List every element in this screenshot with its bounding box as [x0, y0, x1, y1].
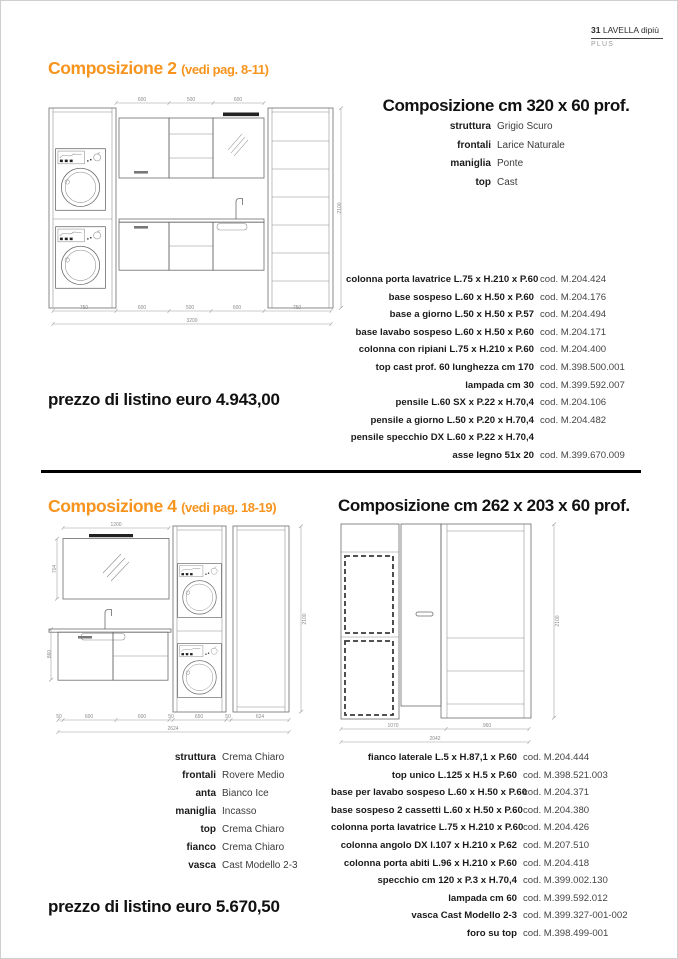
hidden-washer-outline — [345, 556, 393, 633]
item-name: colonna porta abiti L.96 x H.210 x P.60 — [331, 858, 517, 869]
comp4-front-drawing: 1200 704 860 2100 50 600 600 50 650 50 6… — [41, 521, 341, 751]
comp2-title: Composizione 2 (vedi pag. 8-11) — [48, 58, 269, 79]
item-name: base a giorno L.50 x H.50 x P.57 — [346, 309, 534, 320]
washing-machine-icon — [178, 644, 222, 698]
spec-label: struttura — [141, 752, 216, 763]
spec-value: Incasso — [222, 806, 256, 817]
item-row: pensile a giorno L.50 x P.20 x H.70,4cod… — [346, 415, 646, 433]
item-name: specchio cm 120 x P.3 x H.70,4 — [331, 875, 517, 886]
section-divider — [41, 470, 641, 473]
spec-row: strutturaGrigio Scuro — [384, 121, 634, 140]
dim-total-label: 3200 — [186, 318, 197, 324]
item-code: cod. M.204.106 — [540, 397, 606, 408]
item-row: specchio cm 120 x P.3 x H.70,4cod. M.399… — [331, 875, 643, 893]
comp4-title-text: Composizione 4 — [48, 496, 177, 516]
comp2-washer-column — [49, 108, 116, 308]
spec-label: frontali — [384, 140, 491, 151]
comp4-washer-column — [173, 526, 226, 712]
countertop — [49, 629, 171, 632]
item-row: top unico L.125 x H.5 x P.60cod. M.398.5… — [331, 770, 643, 788]
lamp-icon — [223, 113, 259, 117]
dim-label: 50 — [168, 714, 174, 720]
comp2-items: colonna porta lavatrice L.75 x H.210 x P… — [346, 274, 646, 468]
item-row: base sospeso L.60 x H.50 x P.60cod. M.20… — [346, 292, 646, 310]
item-name: colonna porta lavatrice L.75 x H.210 x P… — [346, 274, 534, 285]
item-name: pensile L.60 SX x P.22 x H.70,4 — [346, 397, 534, 408]
comp2-wall-units — [119, 113, 264, 179]
dim-label: 750 — [80, 305, 89, 311]
dim-label: 600 — [138, 714, 147, 720]
item-code: cod. M.399.670.009 — [540, 450, 625, 461]
cabinet-handle — [78, 636, 92, 639]
item-name: lampada cm 30 — [346, 380, 534, 391]
spec-value: Rovere Medio — [222, 770, 284, 781]
dim-label: 624 — [256, 714, 265, 720]
item-name: foro su top — [331, 928, 517, 939]
spec-row: manigliaPonte — [384, 158, 634, 177]
dim-label: 650 — [195, 714, 204, 720]
item-name: top unico L.125 x H.5 x P.60 — [331, 770, 517, 781]
comp2-subtitle: (vedi pag. 8-11) — [181, 62, 269, 77]
dim-height-label: 2100 — [302, 613, 308, 624]
dim-label: 704 — [52, 565, 58, 574]
basin — [217, 224, 247, 231]
item-code: cod. M.204.371 — [523, 787, 589, 798]
comp4-tall-door — [401, 524, 441, 706]
item-name: colonna angolo DX l.107 x H.210 x P.62 — [331, 840, 517, 851]
item-name: base sospeso L.60 x H.50 x P.60 — [346, 292, 534, 303]
comp2-base-units — [119, 199, 264, 271]
mirror-cabinet — [213, 118, 264, 178]
item-code: cod. M.204.494 — [540, 309, 606, 320]
item-row: colonna angolo DX l.107 x H.210 x P.62co… — [331, 840, 643, 858]
spec-row: topCast — [384, 177, 634, 196]
item-code: cod. M.204.380 — [523, 805, 589, 816]
item-name: base sospeso 2 cassetti L.60 x H.50 x P.… — [331, 805, 517, 816]
dim-label: 600 — [85, 714, 94, 720]
spec-row: topCrema Chiaro — [141, 824, 331, 842]
mirror — [63, 539, 169, 600]
spec-row: fiancoCrema Chiaro — [141, 842, 331, 860]
spec-value: Crema Chiaro — [222, 752, 284, 763]
item-name: asse legno 51x 20 — [346, 450, 534, 461]
item-name: fianco laterale L.5 x H.87,1 x P.60 — [331, 752, 517, 763]
item-row: foro su topcod. M.398.499-001 — [331, 928, 643, 946]
item-code: cod. M.204.482 — [540, 415, 606, 426]
item-name: base per lavabo sospeso L.60 x H.50 x P.… — [331, 787, 517, 798]
item-name: base lavabo sospeso L.60 x H.50 x P.60 — [346, 327, 534, 338]
item-row: colonna porta lavatrice L.75 x H.210 x P… — [331, 822, 643, 840]
mirror-glass-hatch — [228, 134, 248, 156]
comp4-title: Composizione 4 (vedi pag. 18-19) — [48, 496, 276, 517]
item-row: lampada cm 60cod. M.399.592.012 — [331, 893, 643, 911]
spec-label: top — [141, 824, 216, 835]
item-code: cod. M.207.510 — [523, 840, 589, 851]
item-code: cod. M.398.521.003 — [523, 770, 608, 781]
comp4-hidden-washer-column — [341, 524, 399, 719]
spec-row: frontaliLarice Naturale — [384, 140, 634, 159]
comp4-corner-column — [233, 526, 289, 712]
dim-label: 1070 — [387, 723, 398, 729]
spec-value: Bianco Ice — [222, 788, 269, 799]
dim-label: 500 — [187, 97, 196, 103]
item-row: base sospeso 2 cassetti L.60 x H.50 x P.… — [331, 805, 643, 823]
item-code: cod. M.204.400 — [540, 344, 606, 355]
spec-row: frontaliRovere Medio — [141, 770, 331, 788]
item-row: fianco laterale L.5 x H.87,1 x P.60cod. … — [331, 752, 643, 770]
dim-label: 50 — [225, 714, 231, 720]
series-label: PLUS — [591, 41, 663, 48]
item-row: colonna con ripiani L.75 x H.210 x P.60c… — [346, 344, 646, 362]
faucet-icon — [236, 199, 243, 220]
washing-machine-icon — [56, 227, 106, 289]
item-code: cod. M.399.592.007 — [540, 380, 625, 391]
dim-label: 50 — [56, 714, 62, 720]
item-code: cod. M.204.444 — [523, 752, 589, 763]
cabinet-handle — [134, 226, 148, 229]
dim-label: 860 — [47, 650, 53, 659]
comp2-specs: strutturaGrigio Scuro frontaliLarice Nat… — [384, 121, 634, 195]
spec-value: Grigio Scuro — [497, 121, 553, 132]
item-name: pensile specchio DX L.60 x P.22 x H.70,4 — [346, 432, 534, 443]
mirror-glass-hatch — [103, 554, 129, 581]
dim-label: 600 — [138, 97, 147, 103]
catalog-page: 31 LAVELLA dipiù PLUS Composizione 2 (ve… — [0, 0, 678, 959]
spec-row: antaBianco Ice — [141, 788, 331, 806]
item-code: cod. M.399.592.012 — [523, 893, 608, 904]
dim-label: 500 — [186, 305, 195, 311]
spec-value: Cast — [497, 177, 518, 188]
spec-value: Ponte — [497, 158, 523, 169]
comp4-specs: strutturaCrema Chiaro frontaliRovere Med… — [141, 752, 331, 878]
dim-height-label: 2100 — [555, 615, 561, 626]
comp4-side-drawing: 2100 1070 960 2042 — [339, 516, 644, 761]
comp2-price: prezzo di listino euro 4.943,00 — [48, 390, 280, 410]
comp4-size-title: Composizione cm 262 x 203 x 60 prof. — [338, 496, 630, 516]
dim-total-label: 2042 — [429, 736, 440, 742]
dim-label: 600 — [234, 97, 243, 103]
item-code: cod. M.399.002.130 — [523, 875, 608, 886]
brand-name: LAVELLA dipiù — [603, 25, 659, 35]
item-name: colonna con ripiani L.75 x H.210 x P.60 — [346, 344, 534, 355]
spec-value: Crema Chiaro — [222, 824, 284, 835]
page-header: 31 LAVELLA dipiù PLUS — [591, 25, 663, 48]
item-row: colonna porta lavatrice L.75 x H.210 x P… — [346, 274, 646, 292]
item-row: pensile specchio DX L.60 x P.22 x H.70,4 — [346, 432, 646, 450]
dim-label: 750 — [293, 305, 302, 311]
hidden-washer-outline — [345, 641, 393, 715]
comp2-shelf-column — [268, 108, 333, 308]
dim-total-label: 2624 — [167, 726, 178, 732]
spec-row: strutturaCrema Chiaro — [141, 752, 331, 770]
spec-label: fianco — [141, 842, 216, 853]
item-row: pensile L.60 SX x P.22 x H.70,4cod. M.20… — [346, 397, 646, 415]
spec-label: frontali — [141, 770, 216, 781]
comp2-dimensions: 600 500 600 750 600 500 600 750 3200 210… — [52, 97, 344, 326]
lamp-icon — [89, 534, 133, 537]
item-code: cod. M.204.424 — [540, 274, 606, 285]
cabinet-handle — [134, 171, 148, 174]
item-row: asse legno 51x 20cod. M.399.670.009 — [346, 450, 646, 468]
page-brand: 31 LAVELLA dipiù — [591, 25, 663, 39]
item-name: pensile a giorno L.50 x P.20 x H.70,4 — [346, 415, 534, 426]
spec-label: maniglia — [384, 158, 491, 169]
comp4-price: prezzo di listino euro 5.670,50 — [48, 897, 280, 917]
comp4-wardrobe-column — [441, 524, 531, 718]
comp4-mirror-vanity — [49, 534, 171, 680]
washing-machine-icon — [56, 149, 106, 211]
item-code: cod. M.398.499-001 — [523, 928, 608, 939]
spec-value: Crema Chiaro — [222, 842, 284, 853]
item-row: colonna porta abiti L.96 x H.210 x P.60c… — [331, 858, 643, 876]
item-row: lampada cm 30cod. M.399.592.007 — [346, 380, 646, 398]
item-name: colonna porta lavatrice L.75 x H.210 x P… — [331, 822, 517, 833]
spec-row: manigliaIncasso — [141, 806, 331, 824]
item-code: cod. M.398.500.001 — [540, 362, 625, 373]
comp4-subtitle: (vedi pag. 18-19) — [181, 500, 276, 515]
spec-label: struttura — [384, 121, 491, 132]
countertop — [119, 219, 264, 222]
item-row: base lavabo sospeso L.60 x H.50 x P.60co… — [346, 327, 646, 345]
washing-machine-icon — [178, 564, 222, 618]
comp4-items: fianco laterale L.5 x H.87,1 x P.60cod. … — [331, 752, 643, 946]
faucet-icon — [105, 610, 112, 630]
page-number: 31 — [591, 25, 600, 35]
spec-value: Larice Naturale — [497, 140, 565, 151]
spec-label: top — [384, 177, 491, 188]
comp2-size-title: Composizione cm 320 x 60 prof. — [376, 96, 636, 116]
dim-height-label: 2100 — [337, 202, 343, 213]
dim-label: 600 — [138, 305, 147, 311]
spec-label: maniglia — [141, 806, 216, 817]
dim-label: 1200 — [110, 522, 121, 528]
dim-label: 600 — [233, 305, 242, 311]
door-handle — [416, 612, 433, 616]
item-row: base a giorno L.50 x H.50 x P.57cod. M.2… — [346, 309, 646, 327]
item-name: vasca Cast Modello 2-3 — [331, 910, 517, 921]
item-code: cod. M.399.327-001-002 — [523, 910, 628, 921]
spec-row: vascaCast Modello 2-3 — [141, 860, 331, 878]
item-row: vasca Cast Modello 2-3cod. M.399.327-001… — [331, 910, 643, 928]
item-row: top cast prof. 60 lunghezza cm 170cod. M… — [346, 362, 646, 380]
item-code: cod. M.204.418 — [523, 858, 589, 869]
dim-label: 960 — [483, 723, 492, 729]
item-code: cod. M.204.426 — [523, 822, 589, 833]
spec-value: Cast Modello 2-3 — [222, 860, 298, 871]
item-code: cod. M.204.176 — [540, 292, 606, 303]
spec-label: vasca — [141, 860, 216, 871]
comp2-drawing: 600 500 600 750 600 500 600 750 3200 210… — [45, 89, 357, 335]
item-name: top cast prof. 60 lunghezza cm 170 — [346, 362, 534, 373]
spec-label: anta — [141, 788, 216, 799]
item-name: lampada cm 60 — [331, 893, 517, 904]
comp2-title-text: Composizione 2 — [48, 58, 177, 78]
comp4-front-dimensions: 1200 704 860 2100 50 600 600 50 650 50 6… — [47, 522, 308, 734]
item-code: cod. M.204.171 — [540, 327, 606, 338]
item-row: base per lavabo sospeso L.60 x H.50 x P.… — [331, 787, 643, 805]
